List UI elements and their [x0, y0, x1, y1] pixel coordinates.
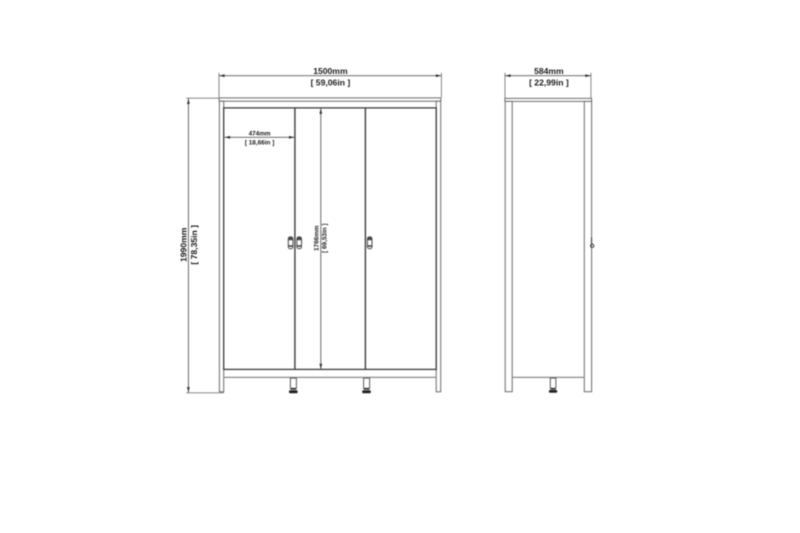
- svg-text:584mm: 584mm: [534, 66, 564, 76]
- svg-text:1500mm: 1500mm: [313, 66, 348, 76]
- svg-text:[ 22,99in ]: [ 22,99in ]: [529, 78, 569, 88]
- svg-text:[ 18,66in ]: [ 18,66in ]: [245, 140, 274, 147]
- svg-text:1766mm: 1766mm: [314, 225, 321, 251]
- svg-text:474mm: 474mm: [249, 130, 271, 137]
- svg-text:[ 59,06in ]: [ 59,06in ]: [311, 78, 351, 88]
- svg-text:1990mm: 1990mm: [179, 227, 189, 262]
- svg-text:[ 78,35in ]: [ 78,35in ]: [189, 225, 199, 265]
- svg-text:[ 69,53in ]: [ 69,53in ]: [322, 223, 329, 252]
